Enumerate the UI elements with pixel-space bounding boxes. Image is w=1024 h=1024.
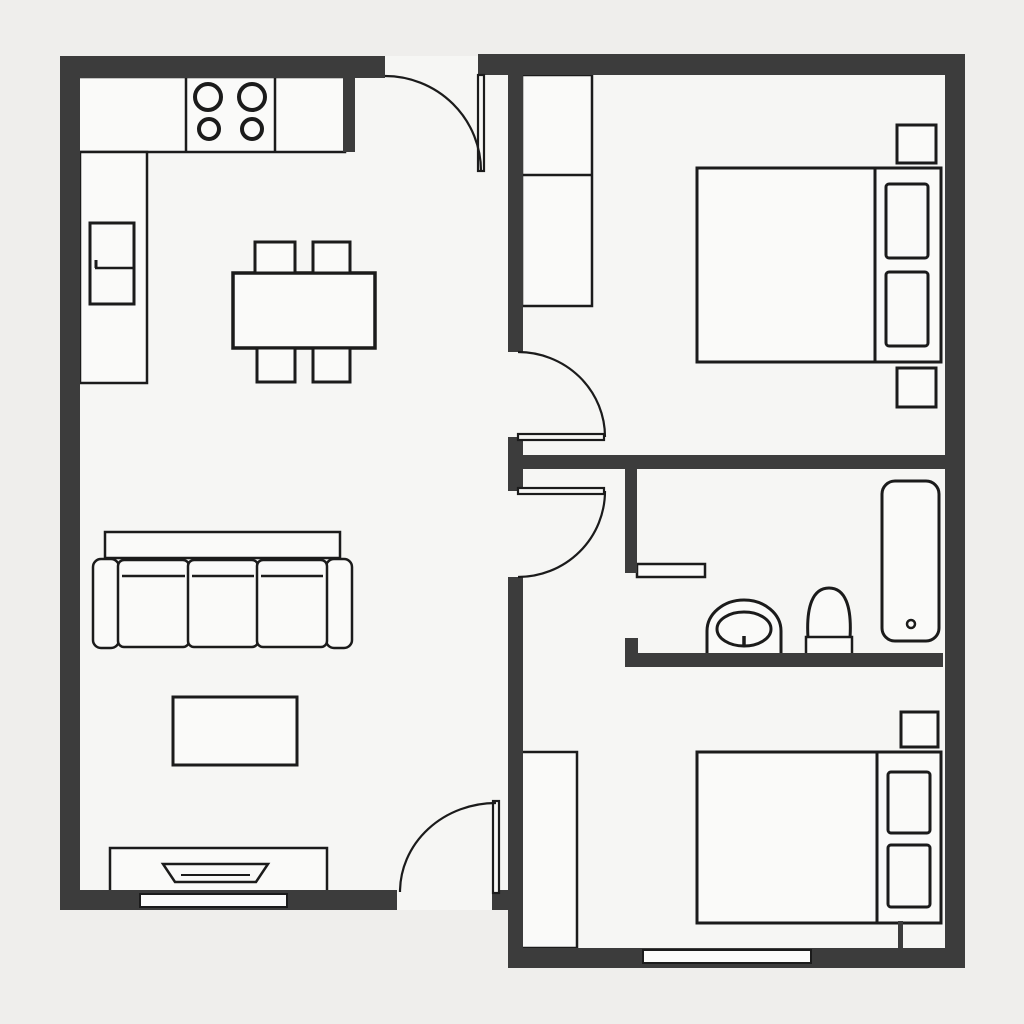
closet-bedroom-bottom (521, 752, 577, 948)
dining-chair-bottom-left (257, 348, 295, 382)
sofa-cushion-middle (188, 560, 258, 647)
sofa-backrest (105, 532, 340, 558)
bedroom-top-door-leaf (518, 434, 604, 440)
window-bedroom-bottom (643, 950, 811, 963)
stove-burner-bottom-right (242, 119, 262, 139)
wall-divider-lower (508, 577, 523, 967)
bed-bottom-pillow-upper (888, 772, 930, 833)
sofa-cushion-left (118, 560, 189, 647)
nightstand-top-bedroom-upper (897, 125, 936, 163)
dining-chair-bottom-right (313, 348, 350, 382)
wall-exterior-left (60, 56, 80, 910)
nightstand-top-bedroom-lower (897, 368, 936, 407)
wall-bathroom-bottom-stub (625, 638, 638, 653)
bed-bottom-pillow-lower (888, 845, 930, 907)
tv-screen (163, 864, 268, 882)
wall-kitchen-stub (343, 75, 355, 152)
coffee-table (173, 697, 297, 765)
floor-plan-svg (0, 0, 1024, 1024)
sofa-armrest-right (326, 559, 352, 648)
wall-exterior-top-left (60, 56, 385, 78)
wall-bathroom-bottom (625, 653, 943, 667)
wall-exterior-right (945, 54, 965, 968)
toilet-bowl (808, 588, 851, 638)
stove-burner-top-left (195, 84, 221, 110)
bed-top-pillow-upper (886, 184, 928, 258)
bed-top-pillow-lower (886, 272, 928, 346)
wall-bed-bottom-stub (898, 921, 903, 948)
living-room-south-door-leaf (493, 801, 499, 893)
sofa-cushion-right (257, 560, 327, 647)
wall-exterior-top-right (478, 54, 965, 75)
bathroom-vanity-shelf (637, 564, 705, 577)
dining-chair-top-left (255, 242, 295, 273)
stove-burner-top-right (239, 84, 265, 110)
hallway-door-leaf (518, 488, 604, 494)
wall-divider-upper (508, 75, 523, 352)
bathtub (882, 481, 939, 641)
window-living-room (140, 894, 287, 907)
floor-plan-page (0, 0, 1024, 1024)
wardrobe-bedroom-top (522, 75, 592, 306)
wall-hallway-bathroom-top (520, 455, 945, 469)
dining-chair-top-right (313, 242, 350, 273)
nightstand-bottom-bedroom (901, 712, 938, 747)
dining-table (233, 273, 375, 348)
stove-burner-bottom-left (199, 119, 219, 139)
sofa-armrest-left (93, 559, 119, 648)
wall-bathroom-left (625, 469, 637, 573)
bathtub-drain (907, 620, 915, 628)
